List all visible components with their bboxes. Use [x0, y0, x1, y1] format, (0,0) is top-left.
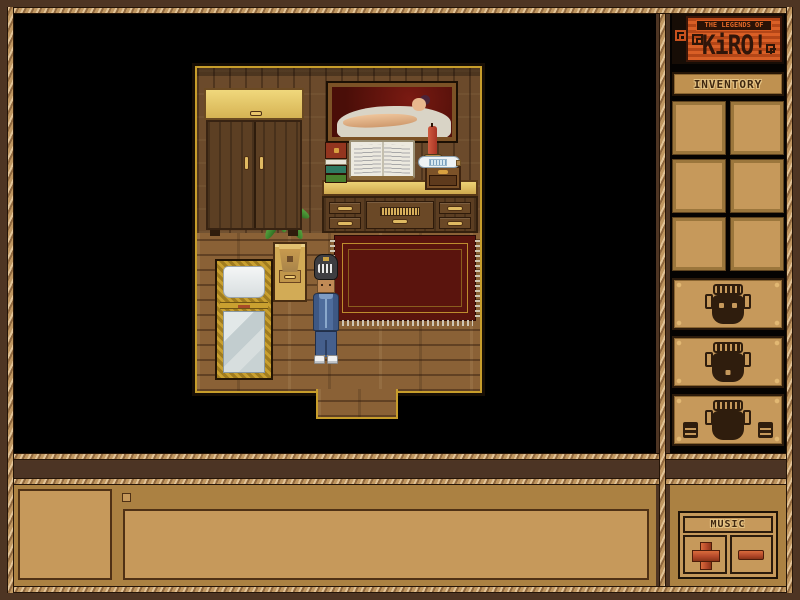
player-collar — [319, 294, 333, 299]
music-label: MUSIC — [710, 519, 745, 530]
painting-figure-head — [412, 98, 425, 111]
mask-grill — [713, 284, 743, 295]
mask-mouth — [726, 370, 731, 375]
mask-fist-left-icon — [683, 422, 698, 438]
wardrobe-handle-left — [244, 156, 249, 170]
logo-plate: THE LEGENDS OF KiRO! — [686, 16, 782, 62]
music-section: MUSIC — [670, 485, 786, 586]
wardrobe-handle-right — [259, 156, 264, 170]
inventory-grid — [673, 102, 783, 270]
frame-rope-right — [786, 7, 793, 593]
chest-front-panel — [429, 175, 457, 186]
divider-rope — [659, 14, 666, 586]
desk-drawer[interactable] — [329, 202, 361, 214]
desk-center-drawer[interactable] — [366, 201, 434, 229]
bed-latch — [238, 305, 250, 308]
game-viewport[interactable] — [14, 14, 656, 453]
logo-panel: THE LEGENDS OF KiRO! — [672, 14, 784, 64]
book-page-left — [354, 144, 381, 173]
tiki-mask-with-fists-icon — [705, 400, 751, 444]
mask-ear — [743, 410, 751, 425]
game-title: KiRO! — [688, 31, 780, 61]
wardrobe-top-cabinet[interactable] — [204, 88, 304, 120]
music-header: MUSIC — [683, 516, 773, 533]
bed-frame-bar — [220, 302, 268, 309]
player-shoe-right — [327, 355, 338, 364]
player-shoe-left — [314, 355, 325, 364]
mask-head — [712, 411, 744, 440]
mask-eye — [732, 303, 737, 308]
player-helmet — [314, 254, 338, 280]
mask-head — [712, 295, 744, 324]
inventory-slot-1[interactable] — [673, 102, 725, 154]
tiki-mask-eyes-open-icon — [705, 284, 751, 328]
portrait-box — [18, 489, 112, 580]
mask-ear — [743, 352, 751, 367]
rug-fringe-right — [475, 239, 480, 317]
message-text-area[interactable] — [123, 509, 649, 580]
bedroom-room — [197, 68, 480, 391]
message-checkbox[interactable] — [122, 493, 131, 502]
player-face — [317, 280, 335, 293]
mask-grill — [713, 342, 743, 353]
desk-drawer[interactable] — [439, 202, 471, 214]
player-pants — [315, 331, 337, 357]
logo-tagline: THE LEGENDS OF — [696, 20, 772, 31]
rug-fringe-bottom — [337, 320, 473, 326]
book-spine — [382, 142, 384, 176]
inventory-slot-2[interactable] — [731, 102, 783, 154]
inventory-header: INVENTORY — [672, 72, 784, 96]
volume-down-button[interactable] — [730, 535, 774, 574]
strip-rope-bottom — [14, 478, 786, 485]
inventory-slot-6[interactable] — [731, 218, 783, 270]
frame-rope-left — [7, 7, 14, 593]
mask-button-2[interactable] — [672, 336, 784, 388]
wardrobe-top-handle — [250, 111, 262, 116]
mask-fist-right-icon — [758, 422, 773, 438]
mask-button-1[interactable] — [672, 278, 784, 330]
inventory-slot-4[interactable] — [731, 160, 783, 212]
desk-drawer[interactable] — [329, 217, 361, 229]
inventory-slot-3[interactable] — [673, 160, 725, 212]
frame-rope-bottom — [7, 586, 793, 593]
sidebar: THE LEGENDS OF KiRO! INVENTORY — [670, 14, 786, 453]
volume-up-button[interactable] — [683, 535, 727, 574]
wardrobe-leg — [288, 230, 298, 236]
mask-eye — [719, 303, 724, 308]
game-window: THE LEGENDS OF KiRO! INVENTORY — [0, 0, 800, 600]
book-page-right — [383, 144, 410, 173]
book-stack[interactable] — [325, 142, 347, 186]
nightstand-drawer-handle — [284, 275, 296, 279]
plus-icon — [691, 541, 719, 569]
bottle-cork — [456, 160, 461, 166]
message-panel — [14, 485, 656, 586]
desk-drawer[interactable] — [439, 217, 471, 229]
desk-name-plate — [380, 207, 420, 216]
chest-handle — [438, 170, 448, 174]
mask-grill — [713, 400, 743, 411]
mask-head — [712, 353, 744, 382]
bed-sheets — [223, 311, 265, 373]
bed[interactable] — [215, 259, 273, 380]
drawer-handle — [392, 219, 408, 224]
player-jacket — [313, 293, 339, 331]
bottle-label — [429, 159, 447, 166]
wardrobe-doors[interactable] — [206, 120, 302, 230]
inventory-label: INVENTORY — [694, 78, 763, 91]
desk-dresser[interactable] — [322, 196, 478, 233]
doorway-exit[interactable] — [316, 389, 398, 419]
player-character[interactable] — [313, 254, 339, 364]
drawer-handle — [337, 206, 353, 211]
open-book[interactable] — [349, 140, 415, 180]
drawer-handle — [447, 221, 463, 226]
mini-chest[interactable] — [425, 166, 461, 190]
red-rug — [335, 236, 475, 320]
candle[interactable] — [428, 126, 437, 154]
music-controls — [683, 535, 773, 574]
plant-pot — [277, 244, 303, 272]
music-panel: MUSIC — [678, 511, 778, 579]
divider-strip — [14, 461, 786, 478]
wardrobe-leg — [210, 230, 220, 236]
spiral-ornament-icon — [675, 30, 686, 41]
drawer-handle — [447, 206, 463, 211]
strip-rope-top — [14, 453, 786, 460]
frame-rope-top — [7, 7, 793, 14]
message-bottle[interactable] — [418, 156, 460, 168]
red-book — [325, 142, 347, 159]
rug-border-pattern — [342, 243, 468, 313]
mask-button-3[interactable] — [672, 394, 784, 446]
teal-book — [325, 165, 347, 174]
tiki-mask-sleeping-icon — [705, 342, 751, 386]
wardrobe-door-divider — [254, 122, 256, 228]
wardrobe[interactable] — [204, 88, 304, 236]
drawer-handle — [337, 221, 353, 226]
green-book — [325, 174, 347, 183]
mask-ear — [743, 294, 751, 309]
inventory-slot-5[interactable] — [673, 218, 725, 270]
minus-icon — [738, 550, 764, 560]
